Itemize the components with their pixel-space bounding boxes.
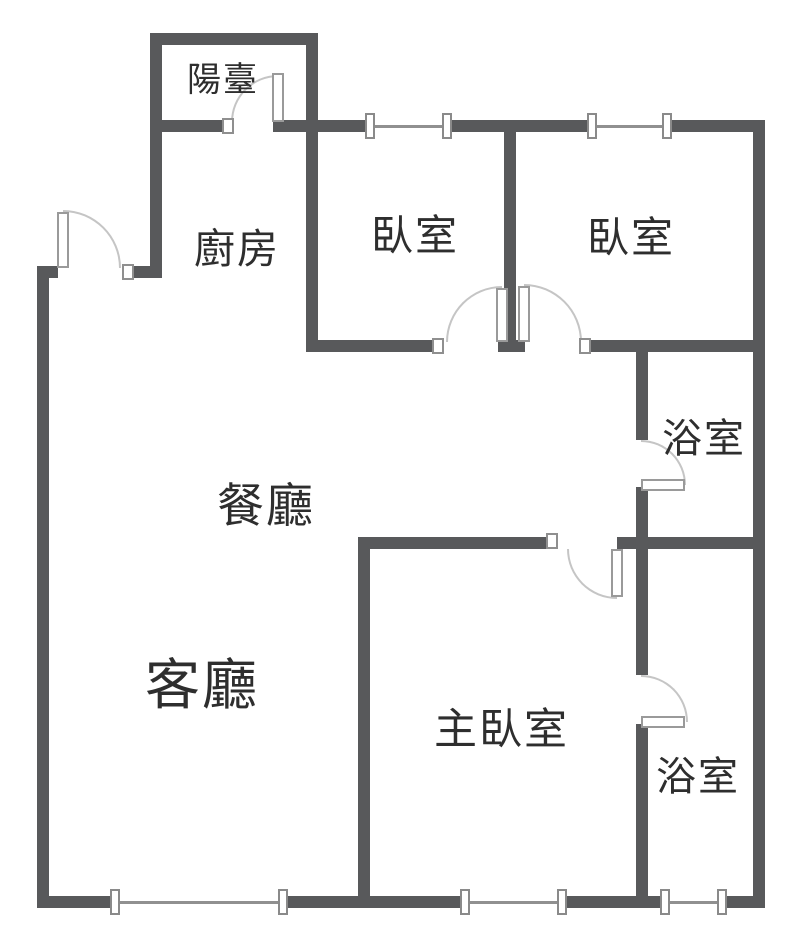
room-label-bedroom1: 臥室 <box>371 213 459 259</box>
bedroom2-door-leaf <box>518 286 530 342</box>
balcony-door-jamb <box>222 118 234 134</box>
window-bath-lower <box>670 901 717 904</box>
master-door-jamb <box>546 533 558 549</box>
entry-door-leaf <box>57 212 69 268</box>
window-tick <box>110 889 120 915</box>
wall-left <box>37 266 49 908</box>
wall-bath-lower-left-b <box>636 724 648 908</box>
window-tick <box>278 889 288 915</box>
wall-top-b <box>450 120 589 132</box>
window-tick <box>660 889 670 915</box>
balcony-door-leaf <box>272 73 284 122</box>
master-door-leaf <box>611 549 623 597</box>
wall-bottom-a <box>37 896 110 908</box>
window-bedroom2 <box>597 125 662 128</box>
wall-balcony-top <box>150 33 318 45</box>
room-label-master: 主臥室 <box>434 707 569 754</box>
wall-master-left <box>358 537 370 908</box>
bedroom2-door-arc <box>524 284 582 342</box>
wall-bedrooms-bottom-a <box>306 340 438 352</box>
window-bedroom1 <box>375 125 442 128</box>
room-label-bath-upper: 浴室 <box>662 417 746 461</box>
window-tick <box>365 113 375 139</box>
room-label-bedroom2: 臥室 <box>587 215 675 261</box>
wall-bedrooms-bottom-c <box>585 340 765 352</box>
bath-upper-door-leaf <box>641 479 685 491</box>
room-label-bath-lower: 浴室 <box>656 755 740 799</box>
window-tick <box>662 113 672 139</box>
room-label-dining: 餐廳 <box>217 481 315 533</box>
window-tick <box>460 889 470 915</box>
wall-top-c <box>670 120 765 132</box>
wall-balcony-bottom-left <box>162 120 228 132</box>
room-label-balcony: 陽臺 <box>187 62 259 99</box>
wall-master-top-b <box>617 537 765 549</box>
floor-plan: 陽臺 廚房 臥室 臥室 浴室 餐廳 客廳 主臥室 浴室 <box>0 0 800 945</box>
bedroom1-door-leaf <box>496 288 508 342</box>
window-tick <box>442 113 452 139</box>
entry-door-jamb <box>122 264 134 280</box>
bedroom2-door-jamb <box>579 338 591 354</box>
master-door-arc <box>567 549 617 599</box>
wall-bottom-d <box>727 896 765 908</box>
wall-bath-upper-left-a <box>636 340 648 440</box>
room-label-living: 客廳 <box>145 655 259 716</box>
window-tick <box>557 889 567 915</box>
wall-right <box>753 120 765 908</box>
room-label-kitchen: 廚房 <box>194 227 280 272</box>
bath-lower-door-arc <box>641 675 688 722</box>
wall-bottom-b <box>288 896 460 908</box>
window-tick <box>587 113 597 139</box>
bath-lower-door-leaf <box>641 716 685 728</box>
bedroom1-door-jamb <box>432 338 444 354</box>
window-master <box>470 901 557 904</box>
wall-kitchen-left <box>150 33 162 278</box>
entry-door-arc <box>63 210 121 268</box>
wall-top-a <box>306 120 365 132</box>
wall-kitchen-right <box>306 33 318 352</box>
wall-master-top-a <box>358 537 552 549</box>
window-tick <box>717 889 727 915</box>
window-living <box>120 901 278 904</box>
bedroom1-door-arc <box>446 286 502 342</box>
wall-bath-lower-left-a <box>636 549 648 675</box>
